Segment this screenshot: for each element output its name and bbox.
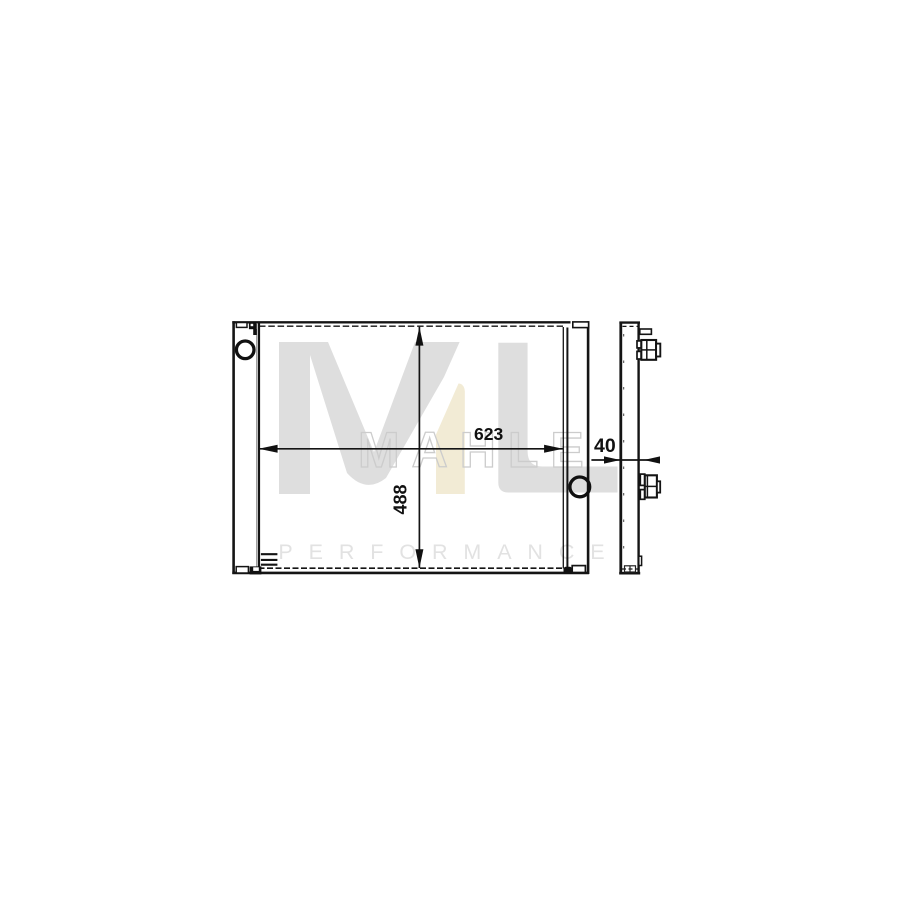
svg-text:488: 488: [390, 484, 410, 514]
svg-text:40: 40: [594, 435, 616, 457]
svg-text:623: 623: [474, 424, 503, 444]
svg-text:PERFORMANCE: PERFORMANCE: [278, 540, 620, 564]
